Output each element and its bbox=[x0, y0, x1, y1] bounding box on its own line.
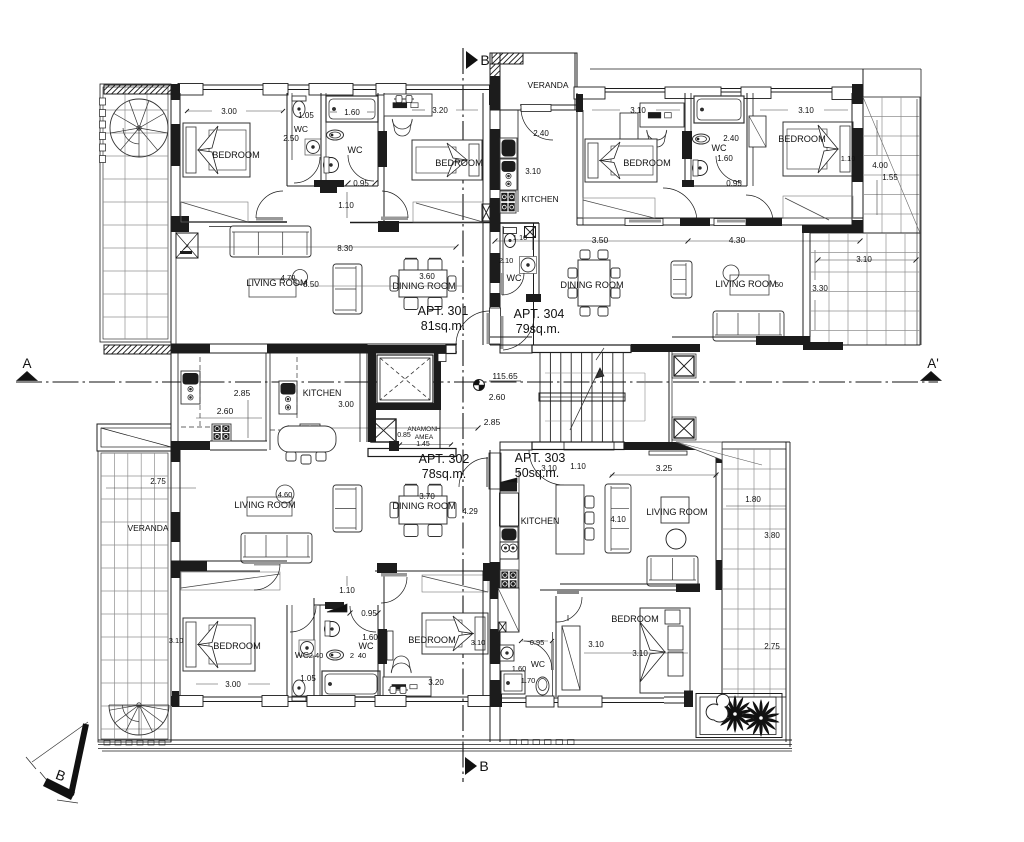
svg-text:KITCHEN: KITCHEN bbox=[521, 194, 558, 204]
svg-text:1.60: 1.60 bbox=[344, 108, 360, 117]
svg-text:BEDROOM: BEDROOM bbox=[611, 614, 658, 624]
svg-text:1.10: 1.10 bbox=[841, 154, 856, 163]
svg-text:1.10: 1.10 bbox=[339, 586, 355, 595]
svg-text:BEDROOM: BEDROOM bbox=[212, 150, 259, 160]
svg-text:LIVING ROOM: LIVING ROOM bbox=[715, 279, 776, 289]
svg-text:1.55: 1.55 bbox=[882, 173, 898, 182]
svg-text:3.10: 3.10 bbox=[541, 464, 557, 473]
svg-text:3.20: 3.20 bbox=[432, 106, 448, 115]
svg-text:4.00: 4.00 bbox=[872, 161, 888, 170]
svg-text:WC: WC bbox=[348, 145, 363, 155]
svg-text:BEDROOM: BEDROOM bbox=[778, 134, 825, 144]
svg-text:3.50: 3.50 bbox=[303, 280, 319, 289]
svg-text:2.75: 2.75 bbox=[764, 642, 780, 651]
svg-text:VERANDA: VERANDA bbox=[127, 523, 168, 533]
svg-text:2.75: 2.75 bbox=[150, 477, 166, 486]
svg-text:WC: WC bbox=[712, 143, 727, 153]
svg-text:KITCHEN: KITCHEN bbox=[521, 516, 560, 526]
svg-text:ANAMONH: ANAMONH bbox=[407, 426, 441, 433]
svg-text:3.80: 3.80 bbox=[764, 531, 780, 540]
svg-text:0.95: 0.95 bbox=[361, 609, 377, 618]
svg-text:WC: WC bbox=[359, 641, 374, 651]
svg-text:1.60: 1.60 bbox=[362, 633, 378, 642]
svg-text:WC: WC bbox=[507, 273, 522, 283]
svg-text:APT. 302: APT. 302 bbox=[419, 452, 470, 466]
svg-text:KITCHEN: KITCHEN bbox=[303, 388, 342, 398]
svg-text:B: B bbox=[480, 52, 489, 68]
svg-text:78sq.m.: 78sq.m. bbox=[422, 467, 466, 481]
svg-text:0.95: 0.95 bbox=[353, 179, 369, 188]
svg-text:1.60: 1.60 bbox=[512, 664, 527, 673]
svg-text:2.40: 2.40 bbox=[533, 129, 549, 138]
svg-text:LIVING ROOM: LIVING ROOM bbox=[646, 507, 707, 517]
svg-text:3.10: 3.10 bbox=[630, 106, 646, 115]
svg-text:3.10: 3.10 bbox=[856, 255, 872, 264]
svg-text:BEDROOM: BEDROOM bbox=[408, 635, 455, 645]
svg-text:3.30: 3.30 bbox=[812, 284, 828, 293]
svg-text:4.30: 4.30 bbox=[729, 235, 746, 245]
svg-text:3.00: 3.00 bbox=[338, 400, 354, 409]
svg-text:115.65: 115.65 bbox=[492, 371, 518, 381]
svg-text:4.70: 4.70 bbox=[281, 273, 296, 282]
svg-text:3.70: 3.70 bbox=[419, 492, 435, 501]
svg-text:B: B bbox=[479, 758, 488, 774]
svg-text:4.10: 4.10 bbox=[610, 515, 626, 524]
svg-text:2.40: 2.40 bbox=[309, 651, 324, 660]
svg-text:WC: WC bbox=[294, 124, 308, 134]
svg-text:8.30: 8.30 bbox=[337, 244, 353, 253]
svg-text:BEDROOM: BEDROOM bbox=[435, 158, 482, 168]
svg-text:2.40: 2.40 bbox=[723, 134, 739, 143]
svg-text:0.95: 0.95 bbox=[530, 638, 545, 647]
svg-text:79sq.m.: 79sq.m. bbox=[516, 322, 560, 336]
svg-text:1.80: 1.80 bbox=[745, 495, 761, 504]
svg-text:2.85: 2.85 bbox=[234, 388, 251, 398]
svg-text:2.60: 2.60 bbox=[217, 406, 234, 416]
svg-text:BEDROOM: BEDROOM bbox=[213, 641, 260, 651]
svg-text:3.10: 3.10 bbox=[798, 106, 814, 115]
svg-text:I: I bbox=[567, 614, 569, 623]
svg-text:APT. 304: APT. 304 bbox=[514, 307, 565, 321]
svg-text:1.10: 1.10 bbox=[570, 462, 586, 471]
svg-text:3.00: 3.00 bbox=[225, 680, 241, 689]
svg-text:1.10: 1.10 bbox=[513, 233, 528, 242]
svg-text:DINING ROOM: DINING ROOM bbox=[560, 280, 623, 290]
svg-text:WC: WC bbox=[531, 659, 545, 669]
svg-text:1.70: 1.70 bbox=[521, 676, 536, 685]
svg-text:LIVING ROOM: LIVING ROOM bbox=[234, 500, 295, 510]
svg-text:1.60: 1.60 bbox=[717, 154, 733, 163]
svg-text:2.85: 2.85 bbox=[484, 417, 501, 427]
svg-text:A: A bbox=[22, 356, 31, 371]
svg-text:3.20: 3.20 bbox=[428, 678, 444, 687]
svg-text:AMEA: AMEA bbox=[415, 434, 434, 441]
svg-text:1.10: 1.10 bbox=[338, 201, 354, 210]
svg-text:APT. 301: APT. 301 bbox=[418, 304, 469, 318]
svg-text:4.29: 4.29 bbox=[462, 507, 478, 516]
svg-text:2.60: 2.60 bbox=[489, 392, 506, 402]
svg-text:3.10: 3.10 bbox=[632, 649, 648, 658]
svg-text:0.85: 0.85 bbox=[397, 432, 411, 439]
svg-text:3.00: 3.00 bbox=[221, 107, 237, 116]
svg-text:APT. 303: APT. 303 bbox=[515, 451, 566, 465]
svg-text:2.50: 2.50 bbox=[283, 134, 299, 143]
svg-text:3.10: 3.10 bbox=[471, 638, 486, 647]
svg-text:2.10: 2.10 bbox=[499, 256, 514, 265]
svg-text:2: 2 bbox=[350, 651, 354, 660]
svg-text:4.60: 4.60 bbox=[278, 490, 293, 499]
svg-text:0.95: 0.95 bbox=[726, 179, 742, 188]
svg-text:3.10: 3.10 bbox=[525, 167, 541, 176]
svg-text:1.05: 1.05 bbox=[300, 674, 316, 683]
svg-text:50: 50 bbox=[775, 280, 783, 289]
svg-text:3.25: 3.25 bbox=[656, 463, 673, 473]
svg-text:DINING ROOM: DINING ROOM bbox=[392, 501, 455, 511]
svg-text:VERANDA: VERANDA bbox=[527, 80, 568, 90]
svg-text:40: 40 bbox=[358, 651, 366, 660]
svg-text:WC: WC bbox=[295, 650, 309, 660]
svg-text:81sq.m.: 81sq.m. bbox=[421, 319, 465, 333]
svg-text:3.10: 3.10 bbox=[169, 636, 184, 645]
svg-text:A': A' bbox=[927, 356, 939, 371]
svg-text:LIVING ROOM: LIVING ROOM bbox=[246, 278, 307, 288]
svg-text:3.60: 3.60 bbox=[419, 272, 435, 281]
svg-text:1.05: 1.05 bbox=[298, 111, 314, 120]
svg-text:1.45: 1.45 bbox=[416, 441, 430, 448]
svg-text:3.10: 3.10 bbox=[588, 640, 604, 649]
svg-text:3.50: 3.50 bbox=[592, 235, 609, 245]
svg-text:BEDROOM: BEDROOM bbox=[623, 158, 670, 168]
